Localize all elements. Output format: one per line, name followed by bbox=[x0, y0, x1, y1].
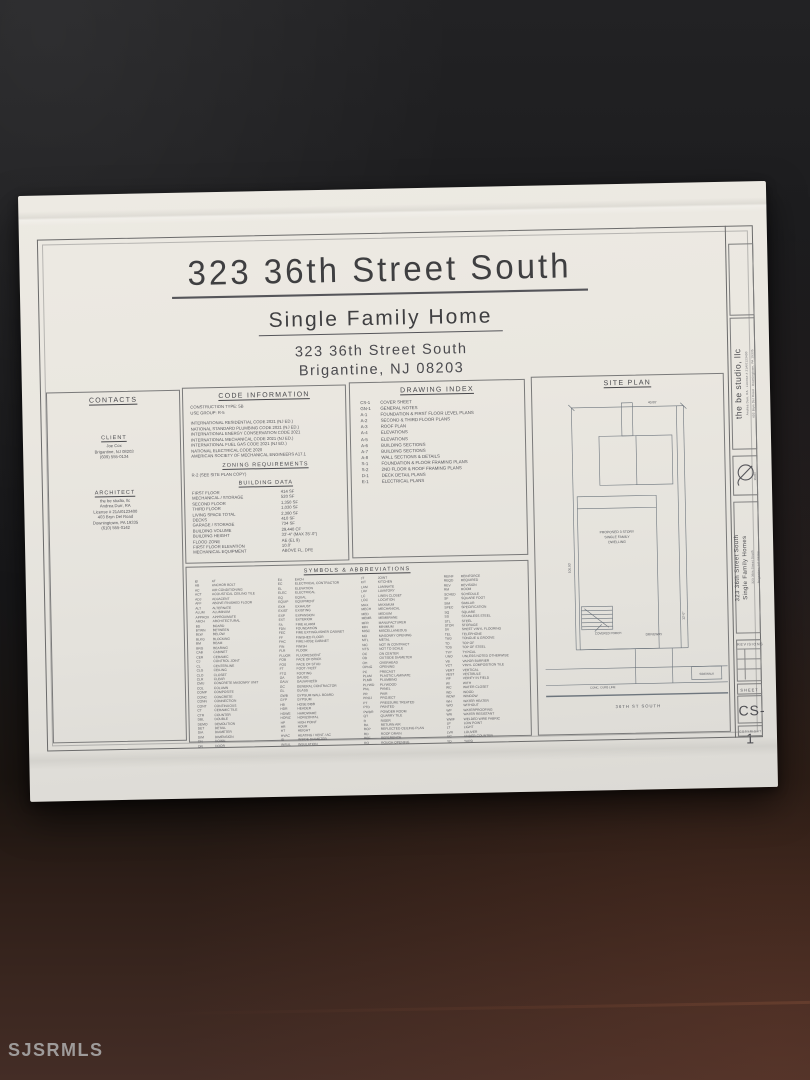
contacts-header: CONTACTS bbox=[49, 396, 177, 406]
project-id-addr1: 323 36th Street South bbox=[750, 551, 755, 584]
abbr: INSUL bbox=[281, 742, 298, 747]
svg-text:studio: studio bbox=[753, 472, 757, 480]
drawing-index-header: DRAWING INDEX bbox=[352, 385, 522, 395]
footer-note-box: COPYRIGHT bbox=[738, 725, 763, 736]
architect-lines: the be studio, llcAndrea Durr, RALicense… bbox=[49, 496, 182, 532]
revision-row bbox=[737, 659, 760, 669]
spacer bbox=[47, 406, 179, 433]
symbols-groups: @ATABANCHOR BOLTACAIR CONDITIONINGACTACO… bbox=[187, 572, 531, 749]
firm-info-line1: Andrea Durr, RA · License # 21AI0123400 bbox=[744, 351, 749, 415]
project-id-addr2: Brigantine, NJ 08203 bbox=[756, 551, 761, 583]
building-label-2: SINGLE FAMILY bbox=[604, 535, 630, 540]
code-lines: INTERNATIONAL RESIDENTIAL CODE 2021 (NJ … bbox=[184, 416, 347, 459]
building-data-rows: FIRST FLOOR 414 SF MECHANICAL / STORAGE … bbox=[185, 486, 348, 555]
symbols-panel: SYMBOLS & ABBREVIATIONS @ATABANCHOR BOLT… bbox=[185, 560, 531, 743]
revisions-label: REVISIONS bbox=[737, 640, 760, 649]
firm-info-line2: 403 Bryn Del Road · Downingtown, PA 1933… bbox=[750, 349, 755, 418]
sheet-title-cell: ELECTRICAL PLANS bbox=[382, 476, 516, 485]
revision-row bbox=[737, 649, 760, 659]
revision-no-cell bbox=[737, 649, 745, 658]
revision-no-cell bbox=[737, 659, 745, 668]
revision-no-cell bbox=[738, 669, 746, 679]
paper-crease bbox=[18, 197, 766, 226]
project-id-line2: Single Family Homes bbox=[741, 535, 748, 599]
drawing-index-rows: CS-1 COVER SHEET GN-1 GENERAL NOTES A-1 … bbox=[350, 395, 526, 486]
firm-box: the be studio, llc Andrea Durr, RA · Lic… bbox=[730, 317, 758, 449]
curb-label: CONC. CURB LINE bbox=[590, 685, 616, 690]
revisions-box: REVISIONS bbox=[736, 639, 762, 681]
zoning-lines: R-2 (SEE SITE PLAN COPY) bbox=[185, 468, 347, 478]
architect-header: ARCHITECT bbox=[49, 488, 181, 497]
zoning-line: R-2 (SEE SITE PLAN COPY) bbox=[192, 469, 340, 477]
abbr: RO bbox=[364, 741, 381, 746]
firm-logo-box: studio bbox=[732, 455, 758, 495]
site-plan-drawing: PROPOSED 3 STORY SINGLE FAMILY DWELLING … bbox=[532, 385, 730, 729]
building-label-3: DWELLING bbox=[608, 540, 626, 544]
code-top-lines: CONSTRUCTION TYPE: 5BUSE GROUP: R-5 bbox=[183, 400, 345, 415]
porch-label: COVERED PORCH bbox=[595, 631, 622, 636]
mls-watermark: SJSRMLS bbox=[8, 1040, 104, 1061]
firm-seal-icon: studio bbox=[733, 456, 759, 494]
abbr: DR bbox=[198, 744, 215, 749]
code-info-panel: CODE INFORMATION CONSTRUCTION TYPE: 5BUS… bbox=[182, 384, 349, 563]
sheet-number-box: CS-1 bbox=[737, 695, 763, 723]
street-label: 36TH ST SOUTH bbox=[616, 703, 662, 709]
project-id-line1: 323 36th Street South bbox=[733, 534, 740, 601]
code-info-header: CODE INFORMATION bbox=[185, 391, 343, 401]
project-id-box: 323 36th Street South Single Family Home… bbox=[733, 501, 761, 633]
sheet-label: SHEET bbox=[738, 684, 761, 695]
sheet-label-box: SHEET bbox=[737, 683, 762, 694]
symbols-group-1: @ATABANCHOR BOLTACAIR CONDITIONINGACTACO… bbox=[195, 578, 274, 749]
client-header: CLIENT bbox=[48, 434, 180, 443]
architect-line: (610) 555-0142 bbox=[56, 524, 176, 532]
building-data-value: ABOVE FL. DFE bbox=[282, 547, 341, 554]
cover-title-zone: 323 36th Street South Single Family Home… bbox=[49, 244, 711, 384]
photo-scene: 323 36th Street South Single Family Home… bbox=[0, 0, 810, 1080]
dim-top: 40.00' bbox=[648, 400, 657, 404]
site-plan-panel: SITE PLAN PROPOSED 3 STORY SINGLE FAMILY bbox=[531, 373, 731, 736]
firm-name: the be studio, llc bbox=[732, 348, 743, 419]
abbr: YD bbox=[447, 739, 464, 744]
building-label-1: PROPOSED 3 STORY bbox=[600, 530, 635, 535]
paper-sheet: 323 36th Street South Single Family Home… bbox=[18, 181, 778, 802]
driveway-label: DRIVEWAY bbox=[646, 632, 664, 636]
project-subtitle: Single Family Home bbox=[258, 304, 502, 336]
project-title: 323 36th Street South bbox=[171, 246, 588, 299]
dim-left: 100.00' bbox=[567, 562, 571, 573]
sidewalk-label: SIDEWALK bbox=[699, 672, 714, 676]
spacer bbox=[48, 458, 180, 487]
dim-right: 12'-0" bbox=[681, 612, 685, 620]
revision-row bbox=[738, 669, 761, 679]
footer-note: COPYRIGHT bbox=[739, 726, 762, 737]
symbols-group-2: EAEACHECELECTRICAL CONTRACTORELELEVATION… bbox=[278, 576, 357, 747]
building-data-label: MECHANICAL EQUIPMENT bbox=[193, 548, 282, 555]
drawing-index-panel: DRAWING INDEX CS-1 COVER SHEET GN-1 GENE… bbox=[349, 379, 528, 558]
symbols-group-4: REINFREINFORCEREQDREQUIREDREVREVISIONRMR… bbox=[444, 573, 523, 744]
symbols-group-3: JTJOINTKITKITCHENLAMLAMINATELAVLAVATORYL… bbox=[361, 575, 440, 746]
sheet-number-cell: E-1 bbox=[362, 479, 382, 485]
desk-edge-highlight bbox=[0, 1001, 810, 1018]
contacts-panel: CONTACTS CLIENT Joe CoxBrigantine, NJ 08… bbox=[46, 390, 187, 744]
titleblock-blank-box bbox=[728, 243, 754, 315]
